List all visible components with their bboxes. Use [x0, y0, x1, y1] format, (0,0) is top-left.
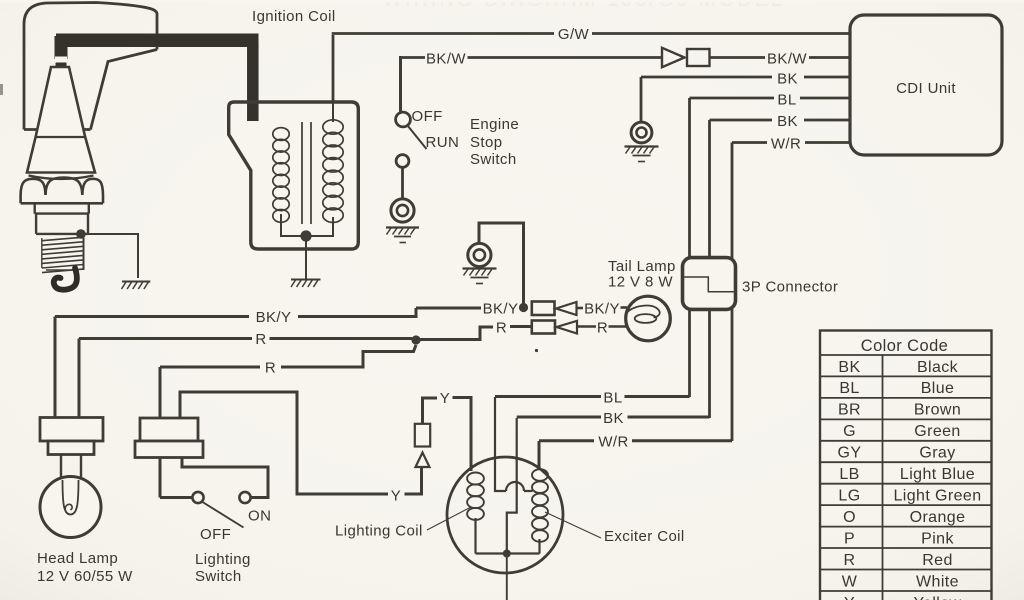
svg-text:BK/Y: BK/Y — [483, 301, 519, 318]
svg-text:BL: BL — [777, 92, 796, 109]
svg-text:Tail Lamp: Tail Lamp — [608, 258, 676, 275]
svg-text:Light Blue: Light Blue — [900, 466, 975, 483]
svg-text:Switch: Switch — [470, 151, 517, 168]
svg-text:Ignition Coil: Ignition Coil — [252, 8, 336, 25]
svg-text:Head Lamp: Head Lamp — [37, 550, 118, 567]
svg-text:LB: LB — [839, 466, 859, 483]
svg-text:Y: Y — [391, 488, 401, 505]
svg-text:W/R: W/R — [598, 434, 628, 451]
svg-text:Blue: Blue — [921, 380, 955, 397]
svg-text:BK/Y: BK/Y — [256, 309, 292, 326]
svg-text:Color Code: Color Code — [861, 337, 948, 355]
svg-text:RUN: RUN — [426, 134, 460, 151]
svg-text:Y: Y — [440, 390, 450, 407]
svg-text:Black: Black — [917, 359, 959, 376]
svg-text:Exciter Coil: Exciter Coil — [604, 528, 685, 545]
svg-text:Red: Red — [922, 552, 953, 569]
svg-text:BL: BL — [839, 380, 859, 397]
svg-text:W: W — [842, 573, 858, 590]
svg-text:OFF: OFF — [412, 108, 443, 125]
svg-text:BK/Y: BK/Y — [584, 301, 620, 318]
svg-text:BK: BK — [777, 113, 798, 130]
svg-text:Lighting: Lighting — [195, 551, 251, 568]
svg-text:12 V 60/55 W: 12 V 60/55 W — [37, 568, 133, 585]
svg-text:12 V 8 W: 12 V 8 W — [608, 274, 673, 291]
svg-text:R: R — [496, 320, 507, 337]
svg-text:Yellow: Yellow — [913, 595, 961, 600]
svg-text:BK: BK — [838, 359, 860, 376]
svg-text:ON: ON — [248, 508, 271, 525]
svg-text:BL: BL — [603, 390, 622, 407]
svg-text:BK/W: BK/W — [426, 51, 466, 68]
svg-text:O: O — [843, 509, 856, 526]
svg-text:Green: Green — [914, 423, 960, 440]
svg-text:W/R: W/R — [771, 136, 801, 153]
svg-text:Switch: Switch — [195, 568, 242, 585]
svg-text:BK: BK — [777, 71, 798, 88]
svg-text:LG: LG — [838, 488, 860, 505]
svg-text:Lighting Coil: Lighting Coil — [335, 523, 423, 540]
svg-text:R: R — [265, 360, 276, 377]
svg-text:Engine: Engine — [470, 116, 519, 133]
svg-text:OFF: OFF — [200, 526, 231, 543]
svg-text:Brown: Brown — [914, 402, 961, 419]
svg-text:Orange: Orange — [910, 509, 966, 526]
svg-text:Y: Y — [844, 595, 855, 600]
svg-text:Light Green: Light Green — [893, 488, 981, 505]
svg-text:White: White — [916, 573, 959, 590]
svg-text:R: R — [597, 320, 608, 337]
svg-text:P: P — [844, 530, 855, 547]
svg-text:Stop: Stop — [470, 134, 502, 151]
svg-text:R: R — [255, 331, 266, 348]
svg-text:BR: BR — [838, 402, 861, 419]
svg-text:BK: BK — [603, 410, 624, 427]
svg-text:G: G — [843, 423, 856, 440]
svg-text:G/W: G/W — [558, 26, 590, 43]
svg-text:Pink: Pink — [921, 530, 954, 547]
svg-text:Gray: Gray — [919, 445, 955, 462]
svg-text:CDI Unit: CDI Unit — [896, 80, 956, 97]
svg-text:GY: GY — [838, 445, 862, 462]
svg-text:BK/W: BK/W — [767, 51, 807, 68]
svg-text:3P Connector: 3P Connector — [742, 279, 838, 296]
svg-text:R: R — [844, 552, 856, 569]
